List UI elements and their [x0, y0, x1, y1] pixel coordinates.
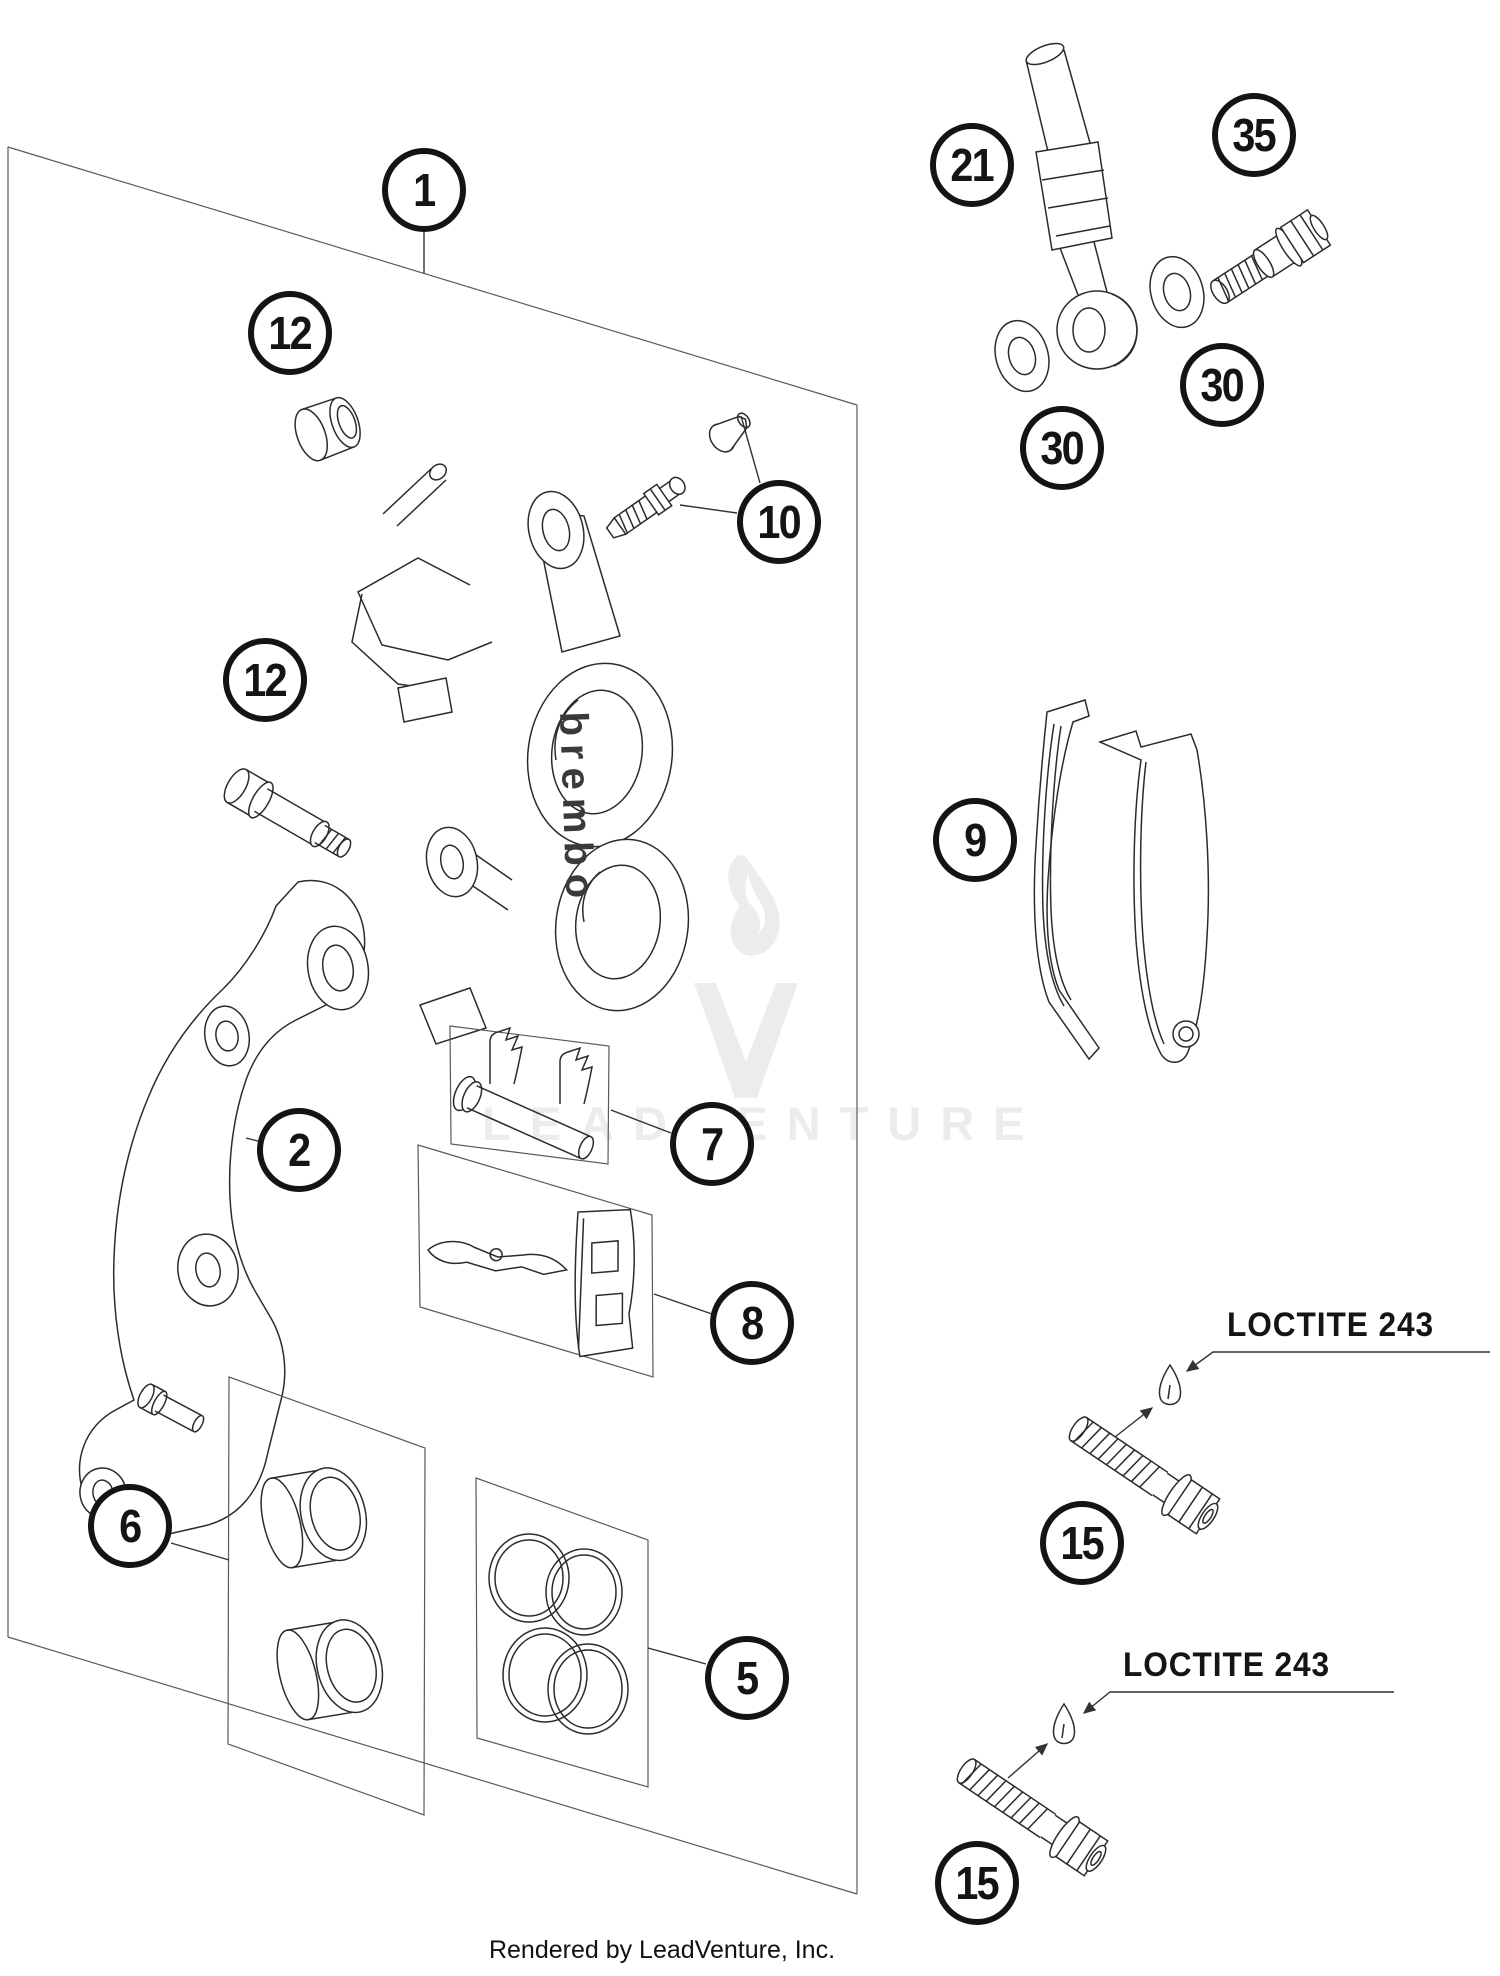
- caliper-bracket-drawing: [76, 881, 375, 1538]
- callout-12-upper: 12: [248, 291, 332, 375]
- callout-30-washer-left: 30: [1020, 406, 1104, 490]
- callout-number: 5: [736, 1651, 757, 1705]
- callout-15-bolt-upper: 15: [1040, 1501, 1124, 1585]
- callout-number: 6: [119, 1499, 140, 1553]
- callout-30-washer-right: 30: [1180, 343, 1264, 427]
- banjo-washer-upper: [1142, 250, 1212, 334]
- callout-number: 21: [951, 138, 993, 192]
- render-credit-caption: Rendered by LeadVenture, Inc.: [462, 1936, 862, 1965]
- callout-2-bracket: 2: [257, 1108, 341, 1192]
- callout-1-caliper-assembly: 1: [382, 148, 466, 232]
- banjo-bolt-drawing: [1202, 206, 1335, 314]
- callout-number: 12: [244, 653, 286, 707]
- callout-number: 15: [956, 1856, 998, 1910]
- callout-5-seal-kit: 5: [705, 1636, 789, 1720]
- bushing-drawing: [289, 393, 367, 465]
- callout-number: 10: [758, 495, 800, 549]
- callout-number: 2: [288, 1123, 309, 1177]
- brand-label: brembo: [551, 711, 602, 907]
- callout-7-pad-pin-kit: 7: [670, 1102, 754, 1186]
- guide-bolt-drawing: [219, 764, 359, 868]
- pad-pin-kit-box: [449, 1026, 609, 1167]
- callout-number: 15: [1061, 1516, 1103, 1570]
- brake-pads-drawing: [1034, 700, 1208, 1062]
- mount-bolt-lower: [948, 1692, 1394, 1882]
- banjo-washer-lower: [987, 314, 1057, 398]
- parts-diagram-canvas: LEADVENTURE: [0, 0, 1500, 1976]
- callout-9-brake-pads: 9: [933, 798, 1017, 882]
- watermark-logo: [694, 855, 798, 1098]
- callout-21-brake-hose: 21: [930, 123, 1014, 207]
- bleeder-valve-drawing: [603, 471, 691, 543]
- callout-number: 8: [741, 1296, 762, 1350]
- callout-number: 1: [413, 163, 434, 217]
- callout-10-bleeder: 10: [737, 480, 821, 564]
- loctite-label-upper: LOCTITE 243: [1227, 1306, 1434, 1345]
- mount-bolt-upper: [1060, 1352, 1490, 1540]
- brake-caliper-drawing: brembo: [352, 461, 699, 1044]
- callout-number: 30: [1201, 358, 1243, 412]
- bleeder-cap-drawing: [704, 407, 757, 457]
- brake-hose-drawing: [1023, 39, 1137, 369]
- callout-number: 30: [1041, 421, 1083, 475]
- callout-number: 7: [701, 1117, 722, 1171]
- callout-number: 35: [1233, 108, 1275, 162]
- callout-8-retainer-kit: 8: [710, 1281, 794, 1365]
- seal-kit-box: [476, 1478, 648, 1787]
- callout-6-piston-kit: 6: [88, 1484, 172, 1568]
- pad-retainer-kit-box: [418, 1145, 653, 1377]
- callout-number: 9: [964, 813, 985, 867]
- callout-number: 12: [269, 306, 311, 360]
- callout-12-lower: 12: [223, 638, 307, 722]
- callout-35-banjo-bolt: 35: [1212, 93, 1296, 177]
- loctite-label-lower: LOCTITE 243: [1123, 1646, 1330, 1685]
- callout-15-bolt-lower: 15: [935, 1841, 1019, 1925]
